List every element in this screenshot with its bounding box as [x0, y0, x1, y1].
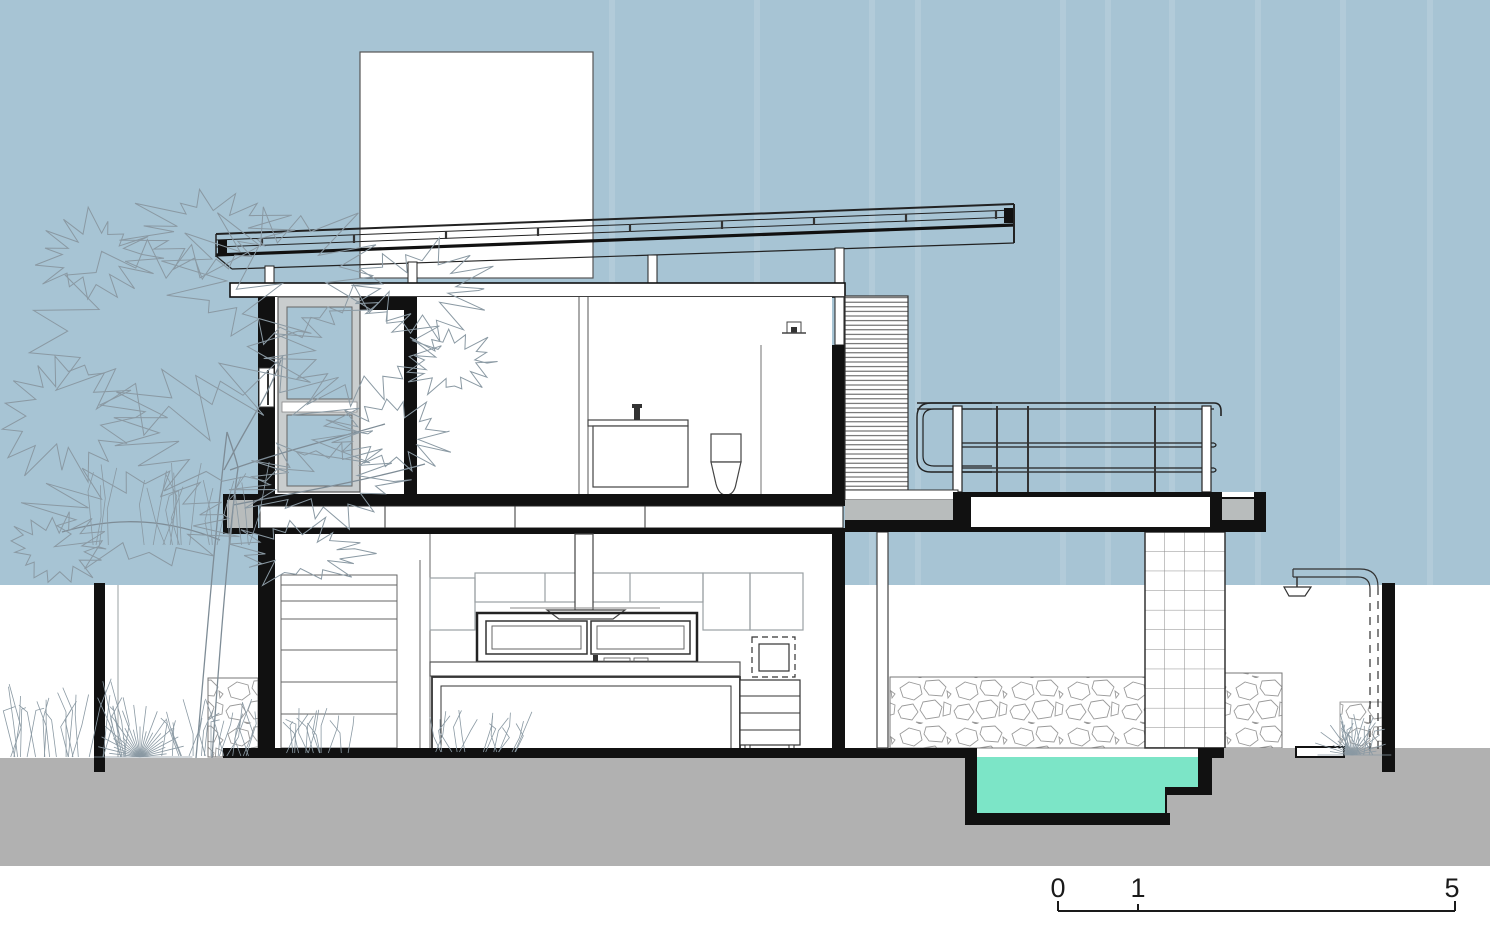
- kitchen-island: [432, 677, 740, 751]
- interfloor-slab: [223, 494, 845, 534]
- roof-post: [835, 248, 844, 284]
- vegetation-line: [183, 699, 193, 756]
- boundary-fence-left: [94, 583, 105, 772]
- roof-post: [648, 255, 657, 284]
- pool-water: [977, 757, 1198, 813]
- under-terrace-column: [877, 532, 888, 748]
- vegetation-line: [27, 708, 44, 757]
- vegetation-line: [21, 708, 26, 757]
- boundary-wall-right: [1382, 583, 1395, 772]
- roof-post: [408, 262, 417, 284]
- scale-bar: 0 1 5: [1050, 873, 1459, 911]
- vegetation-line: [44, 700, 46, 757]
- pool-waterline: [977, 749, 1198, 757]
- terrace-slab: [845, 490, 1266, 532]
- scale-label-1: 1: [1130, 873, 1145, 903]
- lower-floor: [258, 533, 845, 758]
- floor-slab: [223, 748, 977, 758]
- section-drawing: 0 1 5: [0, 0, 1490, 945]
- shower-head: [1284, 587, 1311, 596]
- scale-label-0: 0: [1050, 873, 1065, 903]
- louver-screen: [845, 296, 908, 490]
- roof-post: [265, 266, 274, 284]
- upper-floor: [258, 297, 845, 497]
- garden-bench: [1296, 747, 1344, 757]
- ground-plane: [0, 758, 1490, 866]
- tile-pier: [1145, 532, 1225, 748]
- upper-right-wall: [832, 345, 845, 497]
- stone-wall-right: [890, 677, 1145, 748]
- lower-right-wall: [832, 533, 845, 758]
- vegetation-line: [75, 695, 78, 757]
- scale-label-5: 5: [1444, 873, 1459, 903]
- vegetation-line: [167, 712, 182, 756]
- ceiling-beam: [230, 283, 845, 297]
